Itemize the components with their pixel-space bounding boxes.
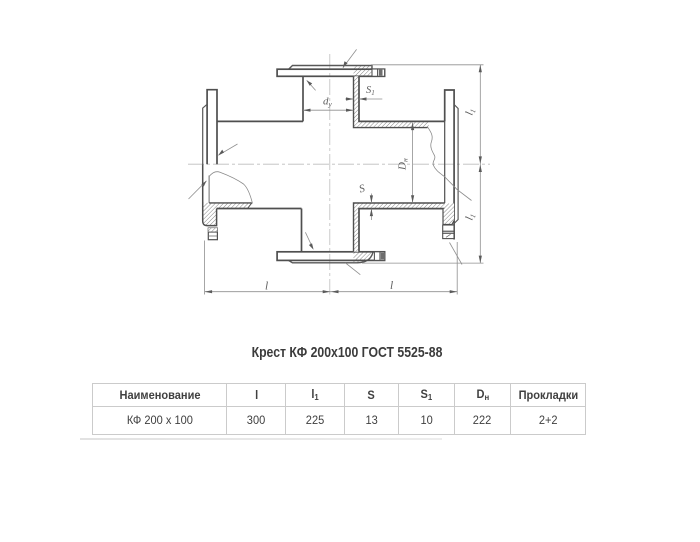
svg-text:l1: l1: [463, 212, 477, 222]
svg-text:l: l: [390, 280, 393, 292]
svg-text:S: S: [358, 182, 367, 195]
svg-text:l1: l1: [463, 107, 477, 117]
svg-text:S1: S1: [366, 85, 375, 97]
svg-text:dу: dу: [323, 96, 333, 109]
svg-text:Dн: Dн: [397, 158, 410, 171]
svg-text:l: l: [265, 281, 268, 293]
